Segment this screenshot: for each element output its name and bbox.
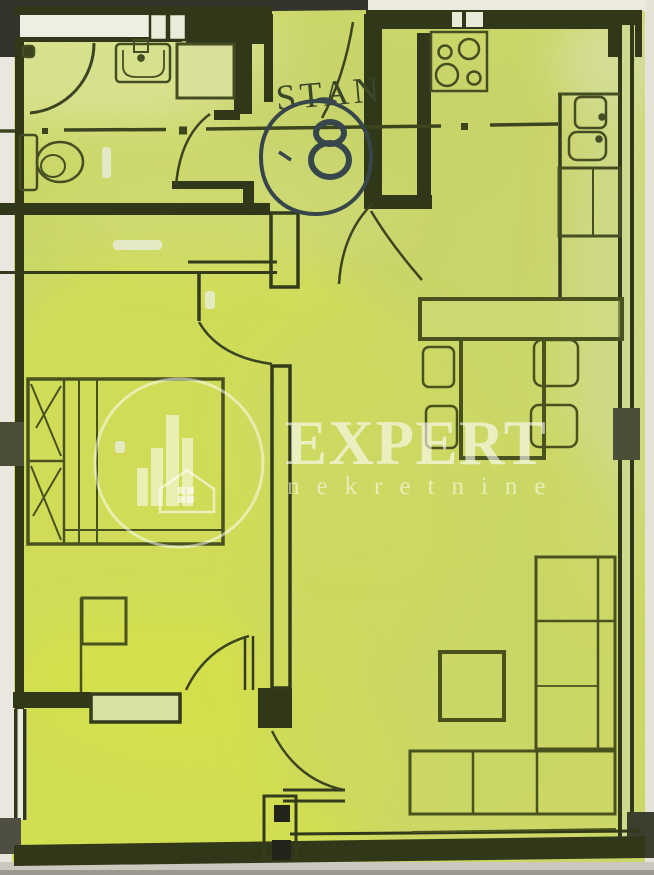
svg-text:EXPERT: EXPERT	[285, 408, 547, 478]
svg-text:nekretnine: nekretnine	[287, 473, 563, 500]
